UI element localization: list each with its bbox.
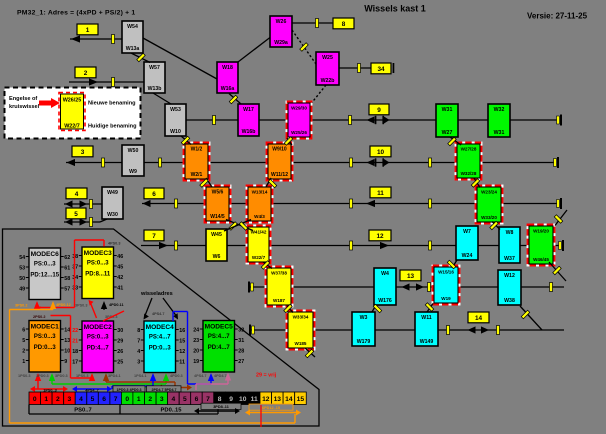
- svg-text:61: 61: [64, 266, 70, 272]
- svg-text:20: 20: [193, 349, 199, 355]
- svg-text:4PS4.7: 4PS4.7: [194, 374, 206, 378]
- svg-text:W46/45: W46/45: [533, 257, 549, 262]
- svg-text:21: 21: [72, 339, 78, 345]
- svg-text:1PS4.1: 1PS4.1: [134, 374, 146, 378]
- svg-text:8: 8: [218, 396, 222, 403]
- svg-text:W9: W9: [129, 169, 137, 175]
- svg-text:W53: W53: [170, 107, 181, 113]
- svg-text:PM32_1: Adres = (4xPD + PS/2): PM32_1: Adres = (4xPD + PS/2) + 1: [17, 10, 135, 17]
- svg-text:W54: W54: [127, 24, 138, 30]
- svg-text:W18: W18: [222, 65, 233, 71]
- svg-text:22: 22: [72, 328, 78, 334]
- svg-text:W187: W187: [273, 298, 285, 303]
- svg-text:4PD0.11: 4PD0.11: [109, 303, 124, 307]
- svg-text:25: 25: [117, 360, 123, 366]
- svg-text:W11: W11: [421, 315, 431, 321]
- svg-text:W38: W38: [504, 298, 515, 304]
- svg-text:W13a: W13a: [126, 46, 140, 52]
- svg-text:W25/26: W25/26: [291, 130, 307, 135]
- svg-text:18: 18: [72, 349, 78, 355]
- svg-text:W15/16: W15/16: [438, 270, 454, 275]
- svg-text:1: 1: [137, 396, 141, 403]
- svg-text:W3: W3: [360, 315, 368, 321]
- svg-text:1PD0.3: 1PD0.3: [36, 374, 49, 378]
- svg-text:1PS0.3: 1PS0.3: [76, 374, 88, 378]
- svg-text:15: 15: [297, 396, 305, 403]
- svg-text:14: 14: [285, 396, 293, 403]
- svg-text:2: 2: [84, 70, 88, 77]
- svg-text:8: 8: [342, 21, 346, 28]
- svg-text:W26/25: W26/25: [63, 98, 82, 104]
- svg-text:16: 16: [179, 328, 185, 334]
- svg-text:58: 58: [64, 276, 70, 282]
- svg-text:30: 30: [117, 328, 123, 334]
- svg-text:12: 12: [179, 349, 185, 355]
- svg-text:2: 2: [56, 396, 60, 403]
- svg-text:W4/3: W4/3: [254, 214, 265, 219]
- svg-text:PS:4...7: PS:4...7: [208, 334, 230, 340]
- svg-text:0: 0: [125, 396, 129, 403]
- svg-text:Wissels kast 1: Wissels kast 1: [364, 3, 425, 13]
- svg-text:W1/2: W1/2: [191, 147, 203, 153]
- svg-text:1: 1: [22, 359, 25, 365]
- svg-text:7: 7: [114, 396, 118, 403]
- svg-text:1PS0.3: 1PS0.3: [18, 374, 30, 378]
- svg-text:54: 54: [19, 255, 25, 261]
- svg-text:PS:0...3: PS:0...3: [87, 335, 109, 341]
- svg-text:PS0..7: PS0..7: [74, 408, 91, 414]
- svg-text:PD:4...7: PD:4...7: [208, 345, 231, 351]
- svg-text:W45: W45: [211, 232, 222, 238]
- svg-text:15: 15: [179, 339, 185, 345]
- svg-text:1: 1: [86, 27, 90, 34]
- svg-text:4: 4: [75, 191, 79, 198]
- svg-text:0: 0: [33, 396, 37, 403]
- svg-text:W37: W37: [504, 256, 515, 262]
- svg-text:MODEC3: MODEC3: [84, 250, 113, 257]
- svg-text:11: 11: [179, 360, 185, 366]
- svg-text:3: 3: [160, 396, 164, 403]
- svg-text:W179: W179: [357, 339, 371, 345]
- svg-text:9: 9: [64, 359, 67, 365]
- svg-text:W13b: W13b: [148, 86, 162, 92]
- svg-text:9: 9: [229, 396, 233, 403]
- svg-text:Huidige benaming: Huidige benaming: [88, 124, 137, 130]
- svg-text:7: 7: [206, 396, 210, 403]
- svg-text:2: 2: [148, 396, 152, 403]
- svg-text:W23/24: W23/24: [481, 190, 497, 195]
- svg-text:MODEC4: MODEC4: [146, 324, 175, 331]
- svg-text:13: 13: [64, 338, 70, 344]
- svg-text:3PD8..11: 3PD8..11: [213, 405, 229, 409]
- svg-text:26: 26: [117, 349, 123, 355]
- svg-text:PS:0...3: PS:0...3: [34, 262, 56, 268]
- svg-text:12: 12: [376, 233, 384, 240]
- svg-text:11: 11: [377, 190, 384, 197]
- svg-text:5: 5: [22, 338, 25, 344]
- svg-text:PD0..15: PD0..15: [161, 408, 183, 414]
- svg-text:23: 23: [193, 338, 199, 344]
- svg-text:W19: W19: [441, 296, 451, 301]
- svg-text:W13/14: W13/14: [252, 190, 268, 195]
- svg-text:31: 31: [238, 338, 244, 344]
- svg-text:32: 32: [238, 328, 244, 334]
- svg-text:W149: W149: [420, 339, 434, 345]
- svg-text:17: 17: [72, 360, 78, 366]
- svg-text:4PD4.7: 4PD4.7: [214, 374, 227, 378]
- svg-text:6: 6: [22, 328, 25, 334]
- svg-text:W29a: W29a: [274, 40, 288, 46]
- svg-text:5: 5: [183, 396, 187, 403]
- svg-text:PD:12...15: PD:12...15: [30, 273, 59, 279]
- svg-text:10: 10: [377, 149, 385, 156]
- svg-text:kruiswissel: kruiswissel: [9, 104, 40, 110]
- svg-text:W27/28: W27/28: [461, 147, 477, 152]
- svg-text:W57: W57: [149, 65, 160, 71]
- svg-text:1PD0.3 4PD0.3: 1PD0.3 4PD0.3: [117, 388, 142, 392]
- svg-text:2: 2: [22, 349, 25, 355]
- svg-text:W14/5: W14/5: [210, 214, 225, 220]
- svg-text:6: 6: [195, 396, 199, 403]
- svg-text:W4: W4: [381, 271, 389, 277]
- svg-text:53: 53: [19, 266, 25, 272]
- svg-text:3: 3: [137, 360, 140, 366]
- svg-text:W37/38: W37/38: [271, 271, 287, 276]
- svg-text:W8: W8: [506, 230, 514, 236]
- svg-text:4: 4: [79, 396, 83, 403]
- svg-text:W31: W31: [494, 130, 505, 136]
- svg-text:W185: W185: [294, 341, 306, 346]
- svg-text:6: 6: [102, 396, 106, 403]
- svg-text:29 = vrij: 29 = vrij: [256, 373, 277, 379]
- svg-text:W31: W31: [442, 107, 453, 113]
- svg-text:W27: W27: [442, 130, 453, 136]
- svg-text:3PD4.1: 3PD4.1: [108, 374, 121, 378]
- svg-text:PD:0...3: PD:0...3: [34, 345, 57, 351]
- svg-text:57: 57: [64, 287, 70, 293]
- svg-text:W5/6: W5/6: [212, 190, 224, 196]
- svg-text:W32: W32: [494, 107, 505, 113]
- svg-text:27: 27: [238, 359, 244, 365]
- svg-text:24: 24: [193, 328, 199, 334]
- svg-text:MODEC2: MODEC2: [84, 324, 113, 331]
- svg-text:7: 7: [152, 233, 156, 240]
- svg-text:W16b: W16b: [242, 129, 256, 135]
- svg-text:3: 3: [68, 396, 72, 403]
- svg-text:PD:0...3: PD:0...3: [149, 346, 172, 352]
- svg-text:2PS0.2: 2PS0.2: [33, 315, 45, 319]
- svg-text:50: 50: [19, 276, 25, 282]
- svg-text:2PD4.7 5PD4.7: 2PD4.7 5PD4.7: [152, 388, 177, 392]
- svg-text:1: 1: [44, 396, 48, 403]
- svg-text:W6: W6: [213, 254, 221, 260]
- svg-text:W50: W50: [128, 148, 139, 154]
- svg-text:34: 34: [377, 66, 385, 73]
- svg-text:4: 4: [137, 349, 140, 355]
- svg-text:3PS0.2: 3PS0.2: [15, 304, 27, 308]
- svg-text:W24: W24: [462, 253, 473, 259]
- svg-text:W9/10: W9/10: [272, 147, 287, 153]
- svg-text:W30: W30: [107, 212, 118, 218]
- svg-text:28: 28: [238, 349, 244, 355]
- svg-text:8: 8: [137, 328, 140, 334]
- svg-text:W176: W176: [378, 298, 392, 304]
- svg-text:W22/7: W22/7: [64, 124, 80, 130]
- svg-text:29: 29: [117, 339, 123, 345]
- svg-text:W22b: W22b: [321, 78, 335, 84]
- svg-text:W11/12: W11/12: [271, 172, 288, 178]
- svg-text:1PS0..3: 1PS0..3: [43, 388, 57, 392]
- svg-text:MODEC6: MODEC6: [31, 251, 60, 258]
- svg-text:Engelse of: Engelse of: [9, 96, 37, 102]
- svg-text:12: 12: [262, 396, 270, 403]
- svg-text:3: 3: [81, 149, 85, 156]
- svg-text:wisseladres: wisseladres: [140, 291, 173, 297]
- svg-text:Nieuwe benaming: Nieuwe benaming: [88, 101, 136, 107]
- svg-text:MODEC1: MODEC1: [31, 324, 60, 331]
- svg-text:3PS0.3: 3PS0.3: [75, 304, 87, 308]
- svg-text:4: 4: [172, 396, 176, 403]
- svg-text:13: 13: [407, 273, 415, 280]
- svg-text:6PD12..15: 6PD12..15: [262, 406, 280, 410]
- svg-text:4PS4.7: 4PS4.7: [152, 312, 164, 316]
- svg-text:46: 46: [117, 254, 123, 260]
- svg-text:W22/7: W22/7: [252, 255, 266, 260]
- svg-text:W2/1: W2/1: [191, 172, 203, 178]
- svg-text:W19/20: W19/20: [533, 229, 549, 234]
- svg-text:W33/34: W33/34: [293, 315, 309, 320]
- svg-text:PS:4...7: PS:4...7: [149, 335, 171, 341]
- svg-text:W12: W12: [504, 273, 515, 279]
- svg-text:PD:8...11: PD:8...11: [85, 272, 111, 278]
- svg-text:62: 62: [64, 255, 70, 261]
- svg-text:W16a: W16a: [221, 86, 235, 92]
- svg-text:W10: W10: [170, 129, 181, 135]
- svg-text:13: 13: [274, 396, 282, 403]
- svg-text:W17: W17: [243, 107, 254, 113]
- svg-text:PD:4...7: PD:4...7: [87, 346, 110, 352]
- svg-text:PS:0...3: PS:0...3: [34, 334, 56, 340]
- svg-text:W7: W7: [463, 229, 471, 235]
- svg-text:7: 7: [137, 339, 140, 345]
- svg-text:6: 6: [152, 191, 156, 198]
- svg-text:Versie: 27-11-25: Versie: 27-11-25: [527, 11, 588, 20]
- svg-text:41: 41: [117, 286, 123, 292]
- svg-text:19: 19: [193, 359, 199, 365]
- svg-text:14: 14: [64, 328, 70, 334]
- svg-text:PS:0...3: PS:0...3: [87, 261, 109, 267]
- svg-text:W25: W25: [322, 55, 333, 61]
- svg-text:W33/20: W33/20: [481, 215, 497, 220]
- svg-text:49: 49: [19, 287, 25, 293]
- svg-text:5: 5: [74, 211, 78, 218]
- svg-text:4PS4..7: 4PS4..7: [85, 388, 99, 392]
- svg-text:10: 10: [64, 349, 70, 355]
- svg-text:W26: W26: [276, 19, 287, 25]
- svg-text:W49: W49: [107, 190, 118, 196]
- svg-text:11: 11: [251, 396, 258, 403]
- svg-text:W32/28: W32/28: [461, 171, 477, 176]
- svg-text:4PD0.12: 4PD0.12: [56, 303, 71, 307]
- svg-text:42: 42: [117, 275, 123, 281]
- svg-text:9: 9: [377, 107, 381, 114]
- svg-text:45: 45: [117, 265, 123, 271]
- svg-text:3PD0.3: 3PD0.3: [55, 374, 68, 378]
- svg-text:5: 5: [91, 396, 95, 403]
- svg-text:MODEC5: MODEC5: [205, 324, 234, 331]
- svg-text:W29/30: W29/30: [291, 106, 307, 111]
- svg-text:4PD0.3: 4PD0.3: [170, 374, 183, 378]
- svg-text:4PS0.3: 4PS0.3: [108, 242, 120, 246]
- svg-text:14: 14: [475, 315, 483, 322]
- svg-text:10: 10: [239, 396, 247, 403]
